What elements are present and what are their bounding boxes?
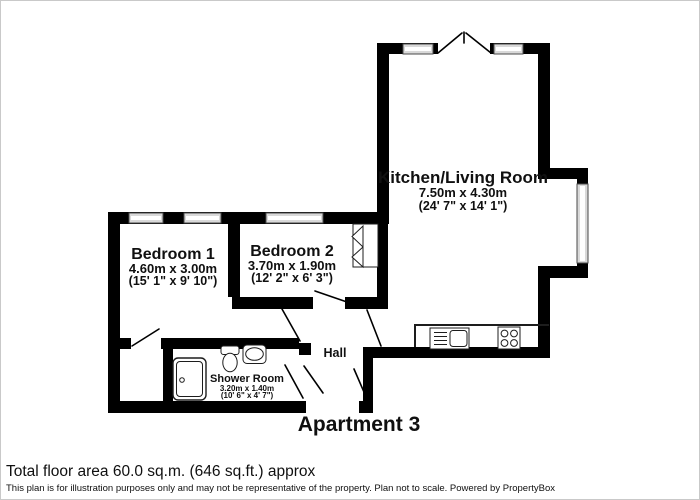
floor-plan-canvas: Kitchen/Living Room 7.50m x 4.30m (24' 7…: [1, 1, 699, 499]
window-pane: [405, 47, 431, 51]
window-pane: [131, 216, 161, 220]
shower-room-dims-imperial: (10' 6" x 4' 7"): [221, 391, 274, 400]
basin-bowl-icon: [246, 348, 264, 361]
disclaimer-text: This plan is for illustration purposes o…: [6, 483, 555, 494]
bedroom2-dims-imperial: (12' 2" x 6' 3"): [251, 271, 333, 285]
opening-patio-door: [438, 42, 490, 55]
kitchen-door-icon: [367, 310, 381, 346]
total-floor-area-text: Total floor area 60.0 sq.m. (646 sq.ft.)…: [6, 463, 316, 480]
kitchen-dims-imperial: (24' 7" x 14' 1"): [419, 199, 508, 213]
wall-kitchen-right-lower: [538, 266, 550, 358]
window-pane: [496, 47, 521, 51]
floor-plan-image: Kitchen/Living Room 7.50m x 4.30m (24' 7…: [0, 0, 700, 500]
kitchen-dims-metric: 7.50m x 4.30m: [419, 185, 507, 200]
wall-outer-left: [108, 212, 120, 413]
window-pane: [580, 186, 585, 261]
hob-burner-icon: [501, 340, 508, 347]
wall-closet-divider: [163, 345, 173, 401]
hob-burner-icon: [511, 340, 518, 347]
bedroom1-dims-imperial: (15' 1" x 9' 10"): [129, 274, 218, 288]
wall-kitchen-left-lower: [377, 212, 388, 309]
wall-kitchen-right-upper: [538, 43, 550, 179]
entrance-door-leaf-icon: [304, 366, 323, 393]
wall-bedroom2-bottom: [232, 297, 313, 309]
bedroom2-door-icon: [315, 291, 347, 302]
wall-outer-bottom-left: [108, 401, 306, 413]
hob-burner-icon: [501, 330, 508, 337]
wall-outer-bottom-right: [359, 401, 373, 413]
hall-label: Hall: [324, 346, 347, 360]
sink-bowl-icon: [450, 331, 467, 347]
hob-burner-icon: [511, 330, 518, 337]
shower-room-door-icon: [285, 365, 303, 398]
window-pane: [268, 216, 321, 220]
wall-bedroom2-bottom-stub: [345, 297, 388, 309]
shower-drain-icon: [180, 378, 185, 383]
plan-title: Apartment 3: [298, 413, 421, 436]
window-pane: [186, 216, 219, 220]
bedroom1-door-icon: [282, 309, 300, 341]
wall-hall-left: [363, 347, 373, 408]
wall-kitchen-left-upper: [377, 43, 389, 224]
wall-hall-stub: [299, 343, 311, 355]
wall-bedroom-divider: [228, 223, 240, 297]
toilet-bowl-icon: [223, 353, 237, 371]
